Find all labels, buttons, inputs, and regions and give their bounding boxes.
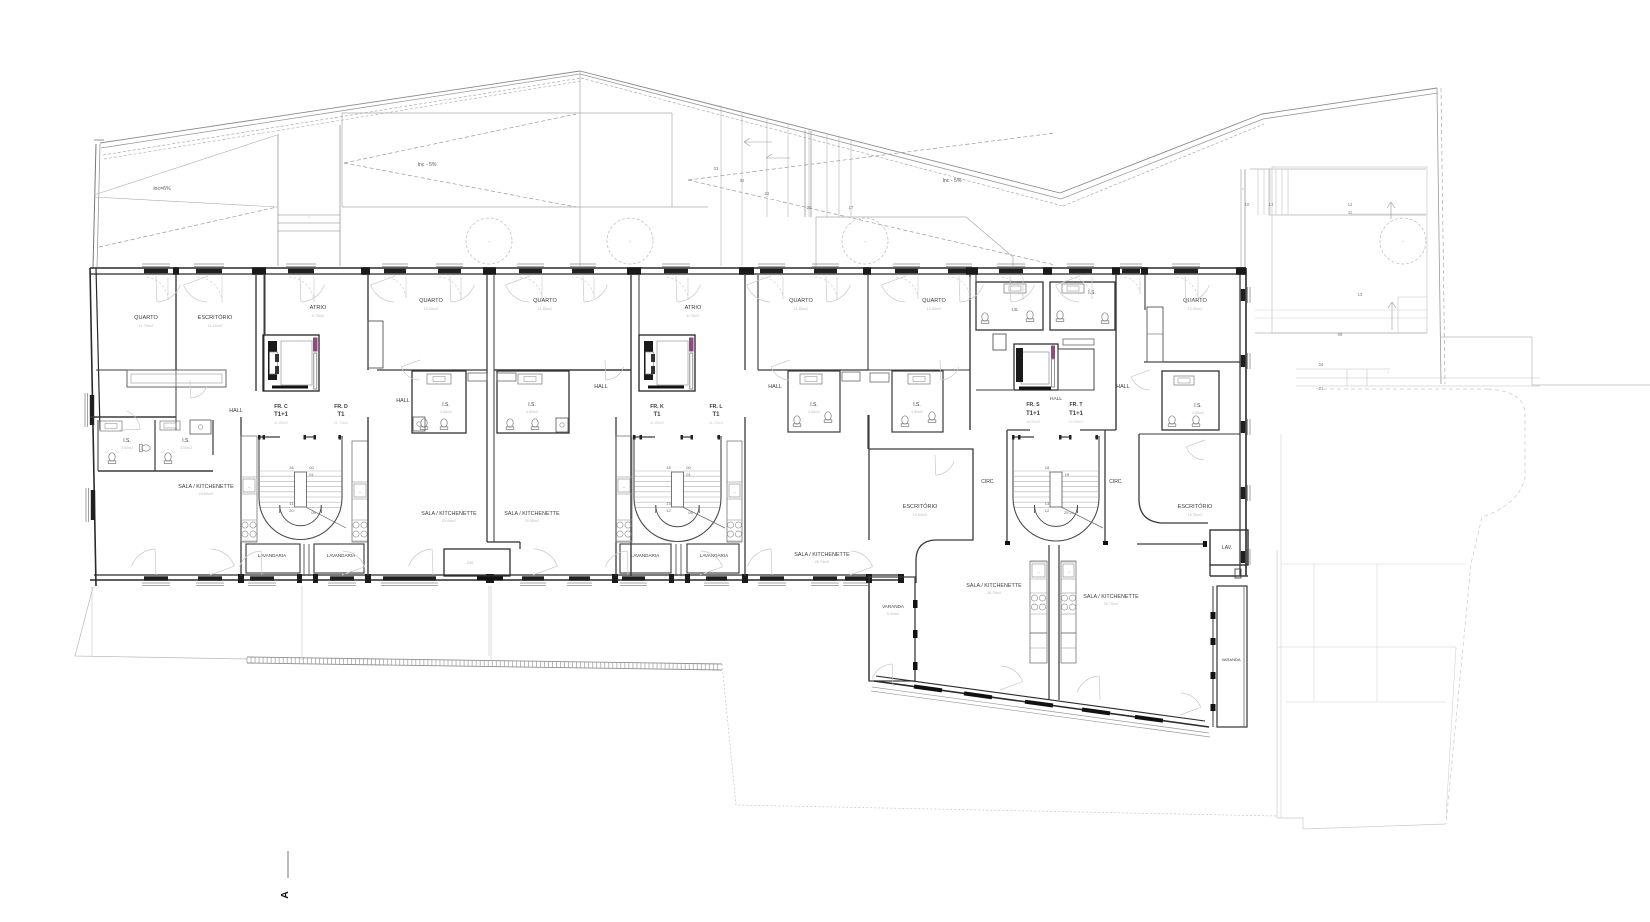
svg-text:↑: ↑ [1387, 370, 1390, 376]
svg-text:4.50m2: 4.50m2 [440, 410, 452, 414]
svg-text:CIRC.: CIRC. [1109, 479, 1123, 485]
svg-text:52.90m2: 52.90m2 [1069, 420, 1084, 424]
svg-text:26.70m2: 26.70m2 [987, 591, 1002, 595]
svg-text:↔: ↔ [1067, 569, 1071, 574]
svg-text:↔: ↔ [622, 484, 626, 489]
svg-text:06: 06 [688, 510, 693, 515]
svg-text:20: 20 [807, 205, 812, 210]
svg-text:HALL: HALL [229, 408, 243, 414]
svg-text:4.50m2: 4.50m2 [1192, 411, 1204, 415]
svg-text:T1: T1 [337, 412, 345, 418]
svg-text:I.S.: I.S. [123, 438, 131, 444]
svg-text:4.50m2: 4.50m2 [911, 410, 923, 414]
svg-text:FR. K: FR. K [650, 404, 664, 410]
svg-text:SALA / KITCHENETTE: SALA / KITCHENETTE [794, 552, 850, 558]
svg-text:12.50m2: 12.50m2 [1188, 307, 1203, 311]
svg-text:6.70m2: 6.70m2 [687, 314, 700, 318]
svg-text:13: 13 [1045, 501, 1050, 506]
svg-text:18: 18 [1045, 465, 1050, 470]
svg-text:T1+1: T1+1 [1069, 411, 1084, 417]
svg-text:00: 00 [309, 465, 314, 470]
svg-text:HALL: HALL [768, 384, 782, 390]
svg-text:41.70m2: 41.70m2 [334, 421, 349, 425]
svg-text:↔: ↔ [1037, 569, 1041, 574]
svg-text:19: 19 [1065, 472, 1070, 477]
svg-text:22: 22 [765, 191, 770, 196]
svg-text:20: 20 [289, 508, 294, 513]
svg-text:12: 12 [666, 508, 671, 513]
svg-text:HALL: HALL [396, 398, 410, 404]
svg-text:LAVANDARIA: LAVANDARIA [258, 553, 287, 558]
svg-text:48.90m2: 48.90m2 [1026, 420, 1041, 424]
svg-text:01: 01 [686, 472, 691, 477]
svg-text:inc=6%: inc=6% [153, 186, 171, 192]
svg-text:20.90m2: 20.90m2 [525, 519, 540, 523]
svg-text:ESCRITÓRIO: ESCRITÓRIO [198, 314, 233, 321]
svg-text:25 24: 25 24 [1064, 510, 1075, 515]
svg-text:10.30m2: 10.30m2 [1188, 513, 1203, 517]
svg-text:10: 10 [1245, 202, 1250, 207]
svg-text:11.70m2: 11.70m2 [139, 324, 154, 328]
svg-text:SALA / KITCHENETTE: SALA / KITCHENETTE [178, 484, 234, 490]
svg-text:06: 06 [311, 510, 316, 515]
svg-text:SALA / KITCHENETTE: SALA / KITCHENETTE [966, 583, 1022, 589]
svg-text:10.50m2: 10.50m2 [927, 307, 942, 311]
svg-text:VARANDA: VARANDA [1221, 657, 1240, 662]
svg-text:11.80m2: 11.80m2 [538, 307, 553, 311]
svg-text:T1+1: T1+1 [274, 412, 289, 418]
svg-text:QUARTO: QUARTO [922, 298, 946, 304]
svg-text:5.00m2: 5.00m2 [887, 612, 899, 616]
svg-text:Inc - 5%: Inc - 5% [942, 178, 961, 184]
svg-text:32: 32 [740, 178, 745, 183]
svg-text:QUARTO: QUARTO [789, 298, 813, 304]
svg-text:FR. S: FR. S [1026, 402, 1040, 408]
svg-text:I.S.: I.S. [1194, 403, 1202, 409]
svg-text:ATRIO: ATRIO [685, 305, 702, 311]
svg-text:SALA / KITCHENETTE: SALA / KITCHENETTE [421, 511, 477, 517]
svg-text:ESCRITÓRIO: ESCRITÓRIO [903, 503, 938, 510]
svg-text:LAVANDARIA: LAVANDARIA [631, 553, 660, 558]
svg-text:I.S.: I.S. [442, 402, 450, 408]
svg-text:6.70m2: 6.70m2 [312, 314, 325, 318]
svg-text:QUARTO: QUARTO [533, 298, 557, 304]
svg-text:10.00m2: 10.00m2 [913, 513, 928, 517]
svg-text:10.00m2: 10.00m2 [424, 307, 439, 311]
svg-text:FR. D: FR. D [334, 404, 348, 410]
svg-text:17: 17 [849, 205, 854, 210]
svg-text:36: 36 [289, 465, 294, 470]
svg-text:T1: T1 [712, 412, 720, 418]
svg-text:SALA / KITCHENETTE: SALA / KITCHENETTE [504, 511, 560, 517]
svg-text:FR. C: FR. C [274, 404, 288, 410]
svg-text:33: 33 [714, 166, 719, 171]
svg-text:4.50m2: 4.50m2 [526, 410, 538, 414]
svg-text:LAVANDARIA: LAVANDARIA [327, 553, 356, 558]
svg-text:42.90m2: 42.90m2 [650, 421, 665, 425]
svg-text:3.50m2: 3.50m2 [121, 446, 133, 450]
svg-text:2.20: 2.20 [467, 561, 474, 565]
svg-text:18: 18 [666, 465, 671, 470]
svg-text:A: A [279, 891, 291, 899]
svg-text:13: 13 [666, 501, 671, 506]
svg-text:ATRIO: ATRIO [310, 305, 327, 311]
svg-text:I.S.: I.S. [810, 402, 818, 408]
svg-text:3.50m2: 3.50m2 [180, 446, 192, 450]
svg-text:11.80m2: 11.80m2 [794, 307, 809, 311]
svg-text:24.60m2: 24.60m2 [199, 492, 214, 496]
svg-text:I.S.: I.S. [1012, 307, 1019, 312]
svg-text:11.10m2: 11.10m2 [208, 324, 223, 328]
svg-text:04: 04 [1319, 362, 1324, 367]
svg-text:CIRC.: CIRC. [981, 479, 995, 485]
svg-text:00: 00 [686, 465, 691, 470]
svg-text:LAV.: LAV. [1222, 545, 1232, 551]
svg-text:13: 13 [1269, 202, 1274, 207]
svg-text:SALA / KITCHENETTE: SALA / KITCHENETTE [1083, 594, 1139, 600]
svg-text:VARANDA: VARANDA [882, 604, 905, 609]
svg-text:HALL: HALL [1050, 396, 1062, 402]
svg-text:T1: T1 [653, 412, 661, 418]
svg-text:12: 12 [1348, 202, 1353, 207]
svg-text:↔: ↔ [733, 489, 737, 494]
svg-text:01: 01 [309, 472, 314, 477]
svg-text:I.S.: I.S. [913, 402, 921, 408]
svg-text:01: 01 [1319, 386, 1324, 391]
svg-text:↑: ↑ [308, 215, 311, 221]
svg-text:20.90m2: 20.90m2 [442, 519, 457, 523]
svg-text:↔: ↔ [247, 484, 251, 489]
svg-text:42.90m2: 42.90m2 [274, 421, 289, 425]
svg-text:I.S.: I.S. [182, 438, 190, 444]
svg-text:FR. L: FR. L [710, 404, 724, 410]
svg-text:26.70m2: 26.70m2 [815, 560, 830, 564]
svg-text:13: 13 [1358, 292, 1363, 297]
svg-text:T1+1: T1+1 [1026, 411, 1041, 417]
svg-text:FR. T: FR. T [1070, 402, 1084, 408]
svg-text:HALL: HALL [594, 384, 608, 390]
svg-text:Inc - 5%: Inc - 5% [417, 162, 436, 168]
svg-text:ESCRITÓRIO: ESCRITÓRIO [1178, 503, 1213, 510]
svg-text:41.70m2: 41.70m2 [709, 421, 724, 425]
svg-text:↔: ↔ [358, 489, 362, 494]
svg-text:12: 12 [1045, 508, 1050, 513]
svg-text:HALL: HALL [1116, 384, 1130, 390]
svg-text:26.70m2: 26.70m2 [1104, 602, 1119, 606]
svg-text:09: 09 [1338, 332, 1343, 337]
svg-text:QUARTO: QUARTO [419, 298, 443, 304]
svg-text:I.S.: I.S. [528, 402, 536, 408]
svg-text:QUARTO: QUARTO [1183, 298, 1207, 304]
svg-text:QUARTO: QUARTO [134, 315, 158, 321]
svg-text:4.50m2: 4.50m2 [808, 410, 820, 414]
